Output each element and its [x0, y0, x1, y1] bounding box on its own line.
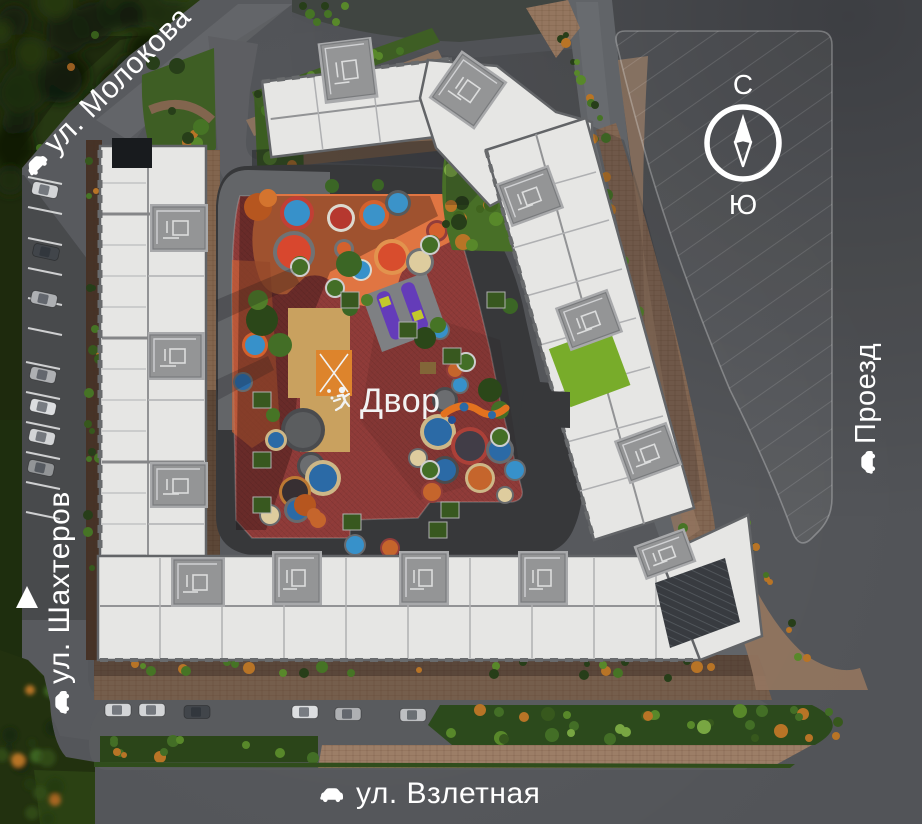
svg-text:Проезд: Проезд [850, 343, 882, 444]
svg-text:С: С [733, 69, 753, 100]
svg-text:Ю: Ю [729, 189, 757, 220]
svg-text:ул. Шахтеров: ул. Шахтеров [43, 491, 76, 684]
svg-text:ул. Взлетная: ул. Взлетная [356, 777, 540, 810]
